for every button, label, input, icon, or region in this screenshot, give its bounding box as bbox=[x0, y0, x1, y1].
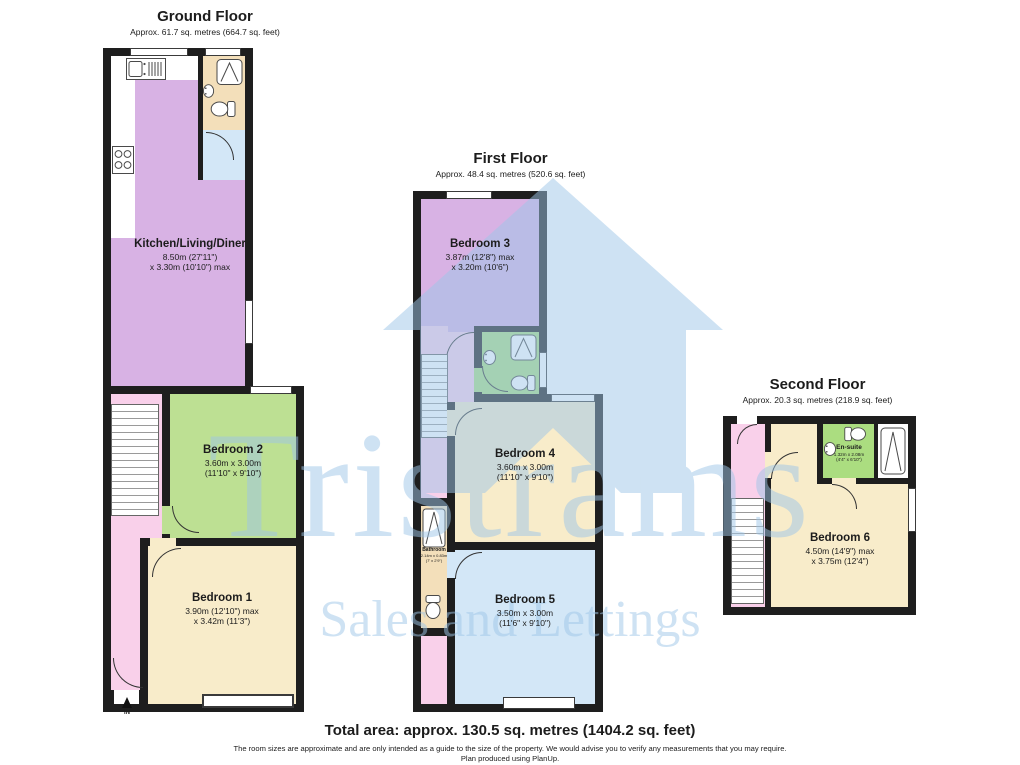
room-name: Bedroom 5 bbox=[453, 594, 597, 608]
room-dim: 8.50m (27'11") bbox=[118, 252, 262, 262]
label-bedroom-5: Bedroom 5 3.50m x 3.00m (11'6" x 9'10") bbox=[453, 594, 597, 628]
label-ensuite: En-suite 1.32m x 2.08m (4'4" x 6'10") bbox=[820, 444, 878, 462]
room-name: Kitchen/Living/Diner bbox=[118, 238, 262, 252]
room-name: En-suite bbox=[820, 444, 878, 452]
total-area-text: Total area: approx. 130.5 sq. metres (14… bbox=[0, 722, 1020, 739]
room-dim: (11'10" x 9'10") bbox=[453, 472, 597, 482]
entrance-label: IN bbox=[117, 710, 137, 716]
room-dim: x 3.20m (10'6") bbox=[408, 262, 552, 272]
ground-floor-header: Ground Floor Approx. 61.7 sq. metres (66… bbox=[100, 8, 310, 37]
room-name: Bedroom 1 bbox=[150, 592, 294, 606]
second-floor-title: Second Floor bbox=[715, 376, 920, 393]
room-dim: (4'4" x 6'10") bbox=[820, 457, 878, 462]
ground-floor-subtitle: Approx. 61.7 sq. metres (664.7 sq. feet) bbox=[100, 27, 310, 37]
room-dim: (11'10" x 9'10") bbox=[165, 468, 301, 478]
first-floor-subtitle: Approx. 48.4 sq. metres (520.6 sq. feet) bbox=[408, 169, 613, 179]
label-kitchen-living-diner: Kitchen/Living/Diner 8.50m (27'11") x 3.… bbox=[118, 238, 262, 272]
entrance-arrow-icon bbox=[122, 697, 132, 708]
room-dim: 3.50m x 3.00m bbox=[453, 608, 597, 618]
room-name: Bedroom 2 bbox=[165, 444, 301, 458]
floorplan-page: Tristrams Sales and Lettings Ground Floo… bbox=[0, 0, 1020, 765]
room-name: Bedroom 3 bbox=[408, 238, 552, 252]
label-bedroom-4: Bedroom 4 3.60m x 3.00m (11'10" x 9'10") bbox=[453, 448, 597, 482]
ground-floor-title: Ground Floor bbox=[100, 8, 310, 25]
label-bedroom-2: Bedroom 2 3.60m x 3.00m (11'10" x 9'10") bbox=[165, 444, 301, 478]
second-floor-subtitle: Approx. 20.3 sq. metres (218.9 sq. feet) bbox=[715, 395, 920, 405]
room-dim: 3.60m x 3.00m bbox=[165, 458, 301, 468]
room-dim: 3.87m (12'8") max bbox=[408, 252, 552, 262]
first-floor-header: First Floor Approx. 48.4 sq. metres (520… bbox=[408, 150, 613, 179]
room-dim: x 3.42m (11'3") bbox=[150, 616, 294, 626]
credit-text: Plan produced using PlanUp. bbox=[0, 754, 1020, 763]
room-dim: 3.60m x 3.00m bbox=[453, 462, 597, 472]
room-dim: x 3.75m (12'4") bbox=[770, 556, 910, 566]
room-dim: 3.90m (12'10") max bbox=[150, 606, 294, 616]
room-name: Bedroom 6 bbox=[770, 532, 910, 546]
room-name: Bedroom 4 bbox=[453, 448, 597, 462]
label-bedroom-3: Bedroom 3 3.87m (12'8") max x 3.20m (10'… bbox=[408, 238, 552, 272]
first-floor-title: First Floor bbox=[408, 150, 613, 167]
label-bathroom-first: Bathroom 2.14m x 0.83m (7' x 2'9") bbox=[417, 548, 451, 563]
room-dim: 4.50m (14'9") max bbox=[770, 546, 910, 556]
room-dim: (11'6" x 9'10") bbox=[453, 618, 597, 628]
label-bedroom-1: Bedroom 1 3.90m (12'10") max x 3.42m (11… bbox=[150, 592, 294, 626]
label-bedroom-6: Bedroom 6 4.50m (14'9") max x 3.75m (12'… bbox=[770, 532, 910, 566]
room-dim: (7' x 2'9") bbox=[417, 559, 451, 564]
labels-layer: Ground Floor Approx. 61.7 sq. metres (66… bbox=[0, 0, 1020, 765]
disclaimer-text: The room sizes are approximate and are o… bbox=[0, 744, 1020, 753]
second-floor-header: Second Floor Approx. 20.3 sq. metres (21… bbox=[715, 376, 920, 405]
room-dim: x 3.30m (10'10") max bbox=[118, 262, 262, 272]
